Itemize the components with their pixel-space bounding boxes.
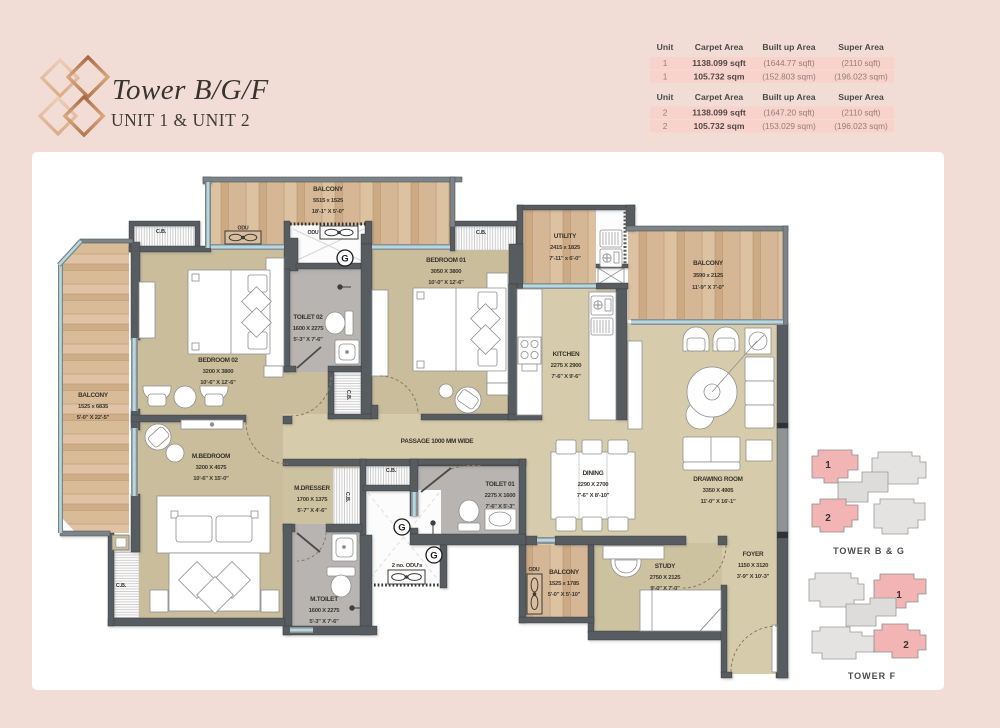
svg-text:5'-3" X 7'-6": 5'-3" X 7'-6" [309,619,339,625]
svg-text:(1644.77 sqft): (1644.77 sqft) [763,58,814,68]
svg-text:2: 2 [903,640,909,651]
svg-text:C.B.: C.B. [156,229,167,235]
svg-text:Unit: Unit [657,42,674,52]
svg-text:UNIT 1 & UNIT 2: UNIT 1 & UNIT 2 [111,110,250,130]
svg-text:STUDY: STUDY [655,563,676,570]
svg-text:Carpet Area: Carpet Area [695,92,744,102]
svg-text:UTILITY: UTILITY [554,233,577,240]
svg-text:2: 2 [663,121,668,131]
svg-text:2 no. ODU's: 2 no. ODU's [392,563,423,569]
svg-text:C.B.: C.B. [116,583,127,589]
svg-text:Carpet Area: Carpet Area [695,42,744,52]
svg-text:1: 1 [825,460,831,471]
svg-text:M.BEDROOM: M.BEDROOM [192,453,230,460]
svg-text:10'-0" X 12'-6": 10'-0" X 12'-6" [428,280,464,286]
svg-text:10'-6" X 12'-6": 10'-6" X 12'-6" [200,380,236,386]
svg-text:7'-6" X 5'-3": 7'-6" X 5'-3" [485,504,515,510]
svg-text:BEDROOM 02: BEDROOM 02 [198,357,238,364]
svg-text:(196.023 sqm): (196.023 sqm) [834,121,888,131]
svg-text:1525 x 1785: 1525 x 1785 [549,581,580,587]
svg-text:ODU: ODU [529,567,540,573]
svg-text:1600 X 2275: 1600 X 2275 [309,608,341,614]
svg-text:TOILET 02: TOILET 02 [293,314,323,321]
svg-text:2415 x 1825: 2415 x 1825 [550,245,581,251]
svg-text:3350 X 4905: 3350 X 4905 [703,488,735,494]
svg-text:7'-6" X 8'-10": 7'-6" X 8'-10" [577,493,610,499]
svg-text:TOWER B & G: TOWER B & G [833,546,905,556]
svg-text:1150 X 3120: 1150 X 3120 [738,563,769,569]
svg-text:Tower B/G/F: Tower B/G/F [112,74,269,106]
svg-text:9'-0" X 7'-0": 9'-0" X 7'-0" [650,586,680,592]
svg-text:G: G [398,523,405,534]
svg-text:ODU: ODU [308,230,319,236]
svg-text:1: 1 [663,72,668,82]
svg-text:C.B.: C.B. [476,230,487,236]
svg-text:BALCONY: BALCONY [313,186,344,193]
svg-text:3200 X 4575: 3200 X 4575 [196,465,228,471]
svg-text:C.B.: C.B. [386,468,397,474]
svg-text:7'-6" X 9'-6": 7'-6" X 9'-6" [551,374,581,380]
svg-text:5'-3" X 7'-6": 5'-3" X 7'-6" [293,337,323,343]
svg-text:Unit: Unit [657,92,674,102]
svg-text:1138.099 sqft: 1138.099 sqft [692,58,746,68]
svg-text:2: 2 [825,513,831,524]
svg-text:ODU: ODU [238,226,249,232]
svg-text:1: 1 [663,58,668,68]
svg-text:5515 x 1525: 5515 x 1525 [313,198,344,204]
svg-text:2: 2 [663,108,668,118]
svg-text:1: 1 [896,590,902,601]
svg-text:2275 X 1600: 2275 X 1600 [485,493,517,499]
svg-text:7'-11" x 6'-0": 7'-11" x 6'-0" [549,256,581,262]
svg-text:5'-0" X 22'-5": 5'-0" X 22'-5" [77,415,110,421]
svg-text:DINING: DINING [583,470,604,477]
svg-text:(2110 sqft): (2110 sqft) [841,108,880,118]
svg-text:(152.803 sqm): (152.803 sqm) [762,72,816,82]
svg-text:3050 X 3800: 3050 X 3800 [431,269,463,275]
svg-text:G: G [341,254,348,265]
svg-text:BALCONY: BALCONY [693,260,724,267]
svg-text:BALCONY: BALCONY [78,392,109,399]
svg-text:1525 x 6835: 1525 x 6835 [78,404,109,410]
svg-text:KITCHEN: KITCHEN [553,351,580,358]
svg-text:BEDROOM 01: BEDROOM 01 [426,257,466,264]
svg-text:11'-0" X 16'-1": 11'-0" X 16'-1" [700,499,736,505]
svg-text:TOILET 01: TOILET 01 [485,481,515,488]
svg-text:Built up Area: Built up Area [762,42,815,52]
svg-text:BALCONY: BALCONY [549,569,580,576]
svg-text:Super Area: Super Area [838,92,884,102]
svg-text:M.TOILET: M.TOILET [310,596,338,603]
svg-text:11'-9" X 7'-0": 11'-9" X 7'-0" [692,285,725,291]
svg-text:M.DRESSER: M.DRESSER [294,485,330,492]
svg-text:105.732 sqm: 105.732 sqm [693,72,744,82]
svg-text:10'-6" X 15'-0": 10'-6" X 15'-0" [193,476,229,482]
svg-text:DRAWING ROOM: DRAWING ROOM [693,476,743,483]
svg-text:(153.029 sqm): (153.029 sqm) [762,121,816,131]
svg-text:2275 X 2900: 2275 X 2900 [551,363,583,369]
svg-text:18'-1" X 5'-0": 18'-1" X 5'-0" [312,209,345,215]
svg-text:3590 x 2125: 3590 x 2125 [693,273,724,279]
svg-text:TOWER F: TOWER F [848,671,896,681]
svg-text:C.B.: C.B. [345,390,351,401]
svg-text:5'-7" X 4'-6": 5'-7" X 4'-6" [297,508,327,514]
svg-text:G: G [430,551,437,562]
svg-text:Super Area: Super Area [838,42,884,52]
svg-text:1600 X 2275: 1600 X 2275 [293,326,325,332]
svg-text:3'-9" X 10'-3": 3'-9" X 10'-3" [737,574,770,580]
svg-text:(1647.20 sqft): (1647.20 sqft) [763,108,814,118]
svg-text:2750 X 2125: 2750 X 2125 [650,575,682,581]
svg-text:FOYER: FOYER [743,551,764,558]
svg-text:2290 X 2700: 2290 X 2700 [578,482,610,488]
svg-text:PASSAGE 1000 MM WIDE: PASSAGE 1000 MM WIDE [401,438,475,445]
svg-text:1700 X 1375: 1700 X 1375 [297,497,329,503]
svg-text:(2110 sqft): (2110 sqft) [841,58,880,68]
svg-text:(196.023 sqm): (196.023 sqm) [834,72,888,82]
svg-text:Built up Area: Built up Area [762,92,815,102]
svg-text:105.732 sqm: 105.732 sqm [693,121,744,131]
svg-text:3200 X 3800: 3200 X 3800 [203,369,235,375]
svg-text:1138.099 sqft: 1138.099 sqft [692,108,746,118]
svg-text:5'-0" X 5'-10": 5'-0" X 5'-10" [548,592,581,598]
svg-text:C.B.: C.B. [344,492,350,503]
